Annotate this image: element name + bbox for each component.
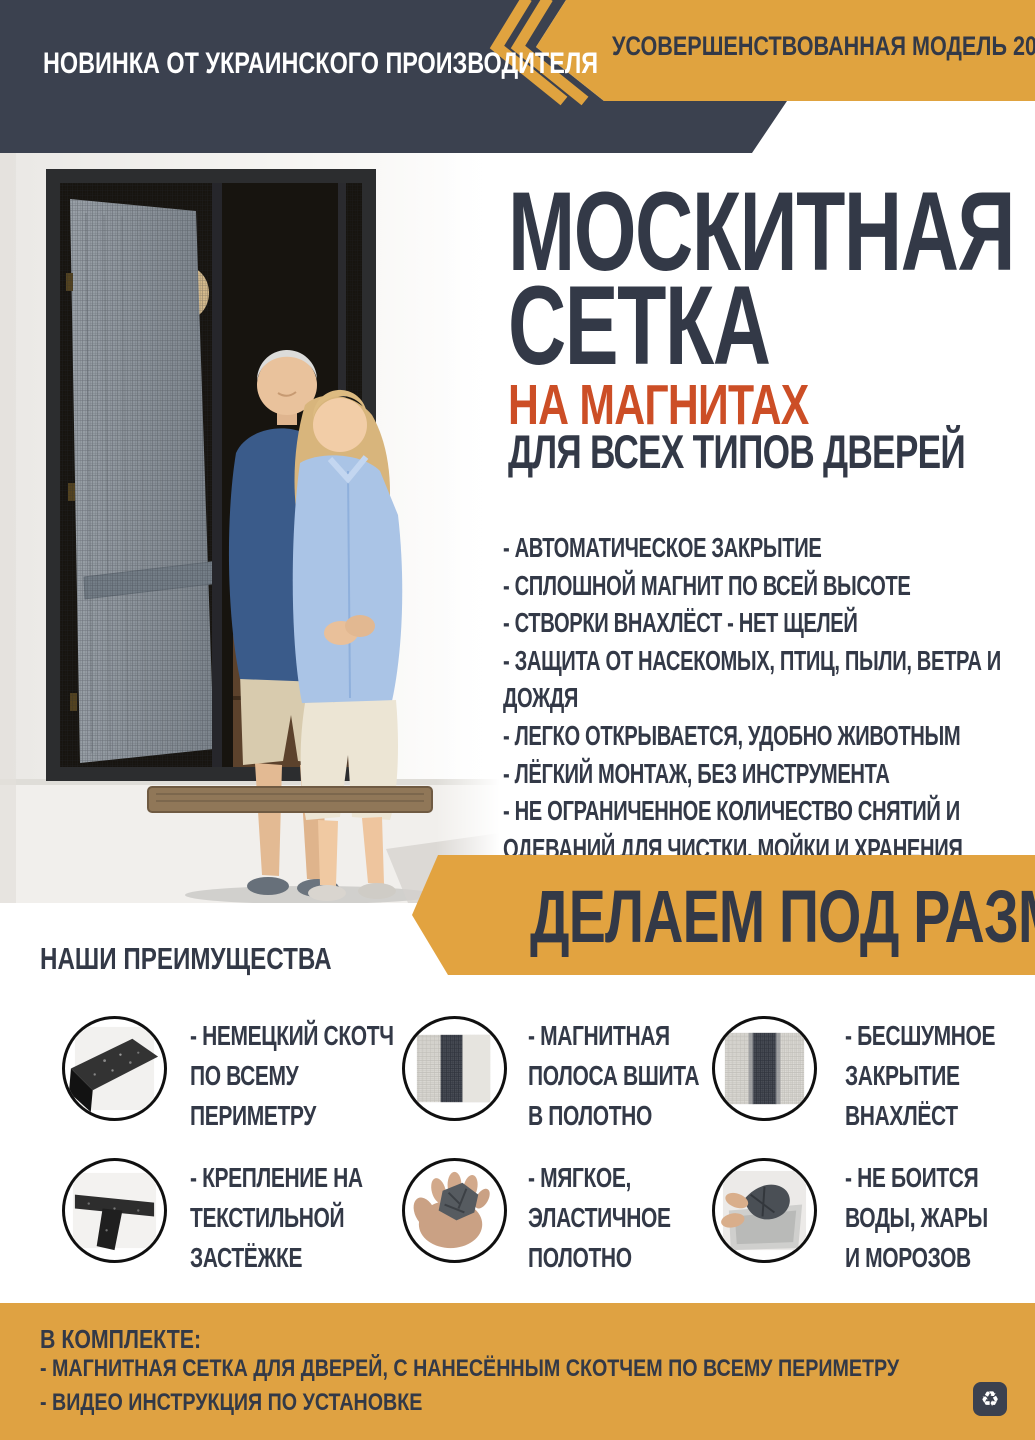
header-right-badge: УСОВЕРШЕНСТВОВАННАЯ МОДЕЛЬ 2022	[612, 31, 1035, 62]
advantage-item: - БЕСШУМНОЕ ЗАКРЫТИЕ ВНАХЛЁСТ	[845, 1016, 995, 1136]
product-title-line2: СЕТКА	[508, 270, 770, 382]
doorway-couple-photo	[0, 153, 500, 903]
woman-head	[313, 398, 367, 452]
footer-item: - МАГНИТНАЯ СЕТКА ДЛЯ ДВЕРЕЙ, С НАНЕСЁНН…	[40, 1355, 899, 1383]
subtitle: ДЛЯ ВСЕХ ТИПОВ ДВЕРЕЙ	[508, 424, 965, 479]
bullet-item: - СПЛОШНОЙ МАГНИТ ПО ВСЕЙ ВЫСОТЕ	[503, 567, 1035, 605]
bullet-item: - ЛЕГКО ОТКРЫВАЕТСЯ, УДОБНО ЖИВОТНЫМ	[503, 717, 1035, 755]
header-left-badge: НОВИНКА ОТ УКРАИНСКОГО ПРОИЗВОДИТЕЛЯ	[43, 47, 598, 81]
wash-resistant-icon	[712, 1158, 817, 1263]
advantage-item: - МАГНИТНАЯ ПОЛОСА ВШИТА В ПОЛОТНО	[528, 1016, 699, 1136]
advantage-item: - НЕ БОИТСЯ ВОДЫ, ЖАРЫ И МОРОЗОВ	[845, 1158, 988, 1278]
mesh-panel-left	[60, 183, 218, 767]
footer-band: В КОМПЛЕКТЕ: - МАГНИТНАЯ СЕТКА ДЛЯ ДВЕРЕ…	[0, 1303, 1035, 1440]
bullet-item: - СТВОРКИ ВНАХЛЁСТ - НЕТ ЩЕЛЕЙ	[503, 604, 1035, 642]
tape-icon	[62, 1016, 167, 1121]
overlap-mesh-icon	[712, 1016, 817, 1121]
footer-item: - ВИДЕО ИНСТРУКЦИЯ ПО УСТАНОВКЕ	[40, 1389, 422, 1417]
flyer-page: НОВИНКА ОТ УКРАИНСКОГО ПРОИЗВОДИТЕЛЯ УСО…	[0, 0, 1035, 1440]
velcro-icon	[62, 1158, 167, 1263]
footer-heading: В КОМПЛЕКТЕ:	[40, 1324, 201, 1355]
size-banner-label: ДЕЛАЕМ ПОД РАЗМЕР	[530, 874, 950, 959]
advantage-item: - МЯГКОЕ, ЭЛАСТИЧНОЕ ПОЛОТНО	[528, 1158, 671, 1278]
advantages-heading: НАШИ ПРЕИМУЩЕСТВА	[40, 941, 332, 977]
feature-bullets: - АВТОМАТИЧЕСКОЕ ЗАКРЫТИЕ - СПЛОШНОЙ МАГ…	[503, 529, 1035, 867]
recycle-icon: ♻	[973, 1382, 1007, 1416]
bullet-item: - АВТОМАТИЧЕСКОЕ ЗАКРЫТИЕ	[503, 529, 1035, 567]
magnet-strip-mesh-icon	[402, 1016, 507, 1121]
advantage-item: - КРЕПЛЕНИЕ НА ТЕКСТИЛЬНОЙ ЗАСТЁЖКЕ	[190, 1158, 363, 1278]
doormat	[148, 787, 432, 812]
soft-mesh-hand-icon	[402, 1158, 507, 1263]
bullet-item: - ЗАЩИТА ОТ НАСЕКОМЫХ, ПТИЦ, ПЫЛИ, ВЕТРА…	[503, 642, 1035, 717]
bullet-item: - ЛЁГКИЙ МОНТАЖ, БЕЗ ИНСТРУМЕНТА	[503, 755, 1035, 793]
advantage-item: - НЕМЕЦКИЙ СКОТЧ ПО ВСЕМУ ПЕРИМЕТРУ	[190, 1016, 394, 1136]
magnet-seam	[212, 183, 222, 767]
